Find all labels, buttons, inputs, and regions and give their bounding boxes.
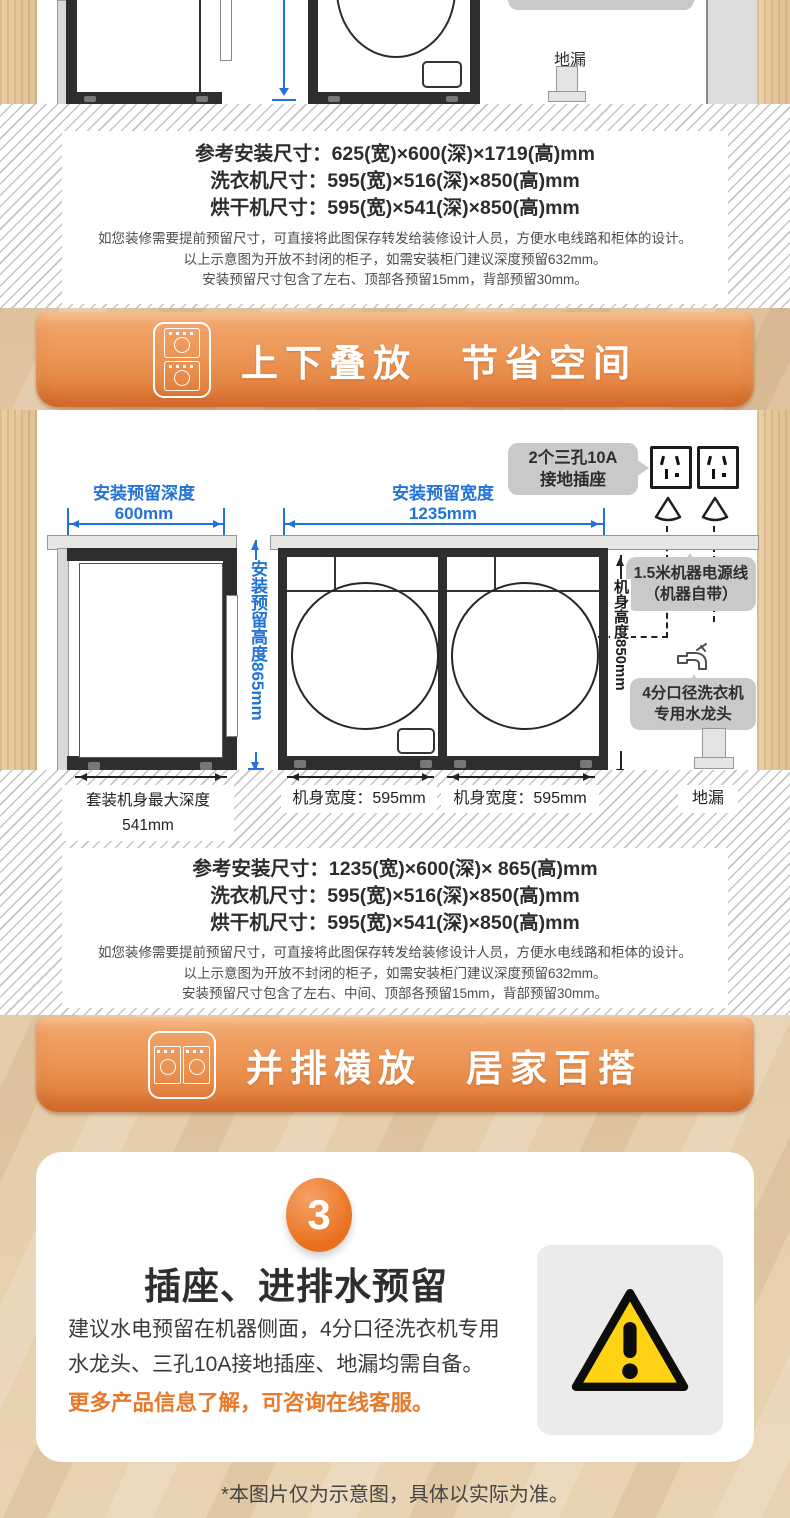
cabinet-back-panel <box>57 548 69 772</box>
body-width-arrow <box>447 776 595 778</box>
product-detail-page: 地漏 参考安装尺寸：625(宽)×600(深)×1719(高)mm 洗衣机尺寸：… <box>0 0 790 1518</box>
cabinet-foot <box>84 96 96 102</box>
washer-glyph <box>164 361 200 391</box>
floor-drain-base <box>694 757 734 769</box>
plug-icon <box>700 495 730 523</box>
step-3-card: 3 插座、进排水预留 建议水电预留在机器侧面，4分口径洗衣机专用水龙头、三孔10… <box>36 1152 754 1462</box>
note-line: 以上示意图为开放不封闭的柜子，如需安装柜门建议深度预留632mm。 <box>62 250 728 271</box>
banner-title: 并排横放 居家百搭 <box>246 1038 642 1092</box>
washer-door-circle <box>291 582 439 730</box>
card-title: 插座、进排水预留 <box>56 1256 536 1310</box>
cropped-callout-bubble <box>508 0 694 10</box>
max-depth-arrow <box>75 776 227 778</box>
note-line: 如您装修需要提前预留尺寸，可直接将此图保存转发给装修设计人员，方便水电线路和柜体… <box>62 943 728 964</box>
dimension-arrowhead <box>279 88 289 96</box>
side-spec-panel: 参考安装尺寸：1235(宽)×600(深)× 865(高)mm 洗衣机尺寸：59… <box>62 848 728 1008</box>
note-line: 如您装修需要提前预留尺寸，可直接将此图保存转发给装修设计人员，方便水电线路和柜体… <box>62 229 728 250</box>
cabinet-side-frame <box>66 0 77 104</box>
warning-box <box>537 1245 723 1435</box>
top-diagram-section: 地漏 参考安装尺寸：625(宽)×600(深)×1719(高)mm 洗衣机尺寸：… <box>0 0 790 308</box>
warning-icon <box>570 1286 690 1394</box>
right-wall-wood <box>757 410 790 770</box>
card-body: 建议水电预留在机器侧面，4分口径洗衣机专用水龙头、三孔10A接地插座、地漏均需自… <box>68 1312 520 1421</box>
body-width-label-right: 机身宽度：595mm <box>441 785 599 813</box>
body-height-dimension: 机身高度850mm <box>608 555 634 777</box>
washer-panel-badge <box>397 728 435 754</box>
right-wall-wood <box>757 0 790 110</box>
washer-foot <box>446 96 458 102</box>
left-wall-wood <box>0 410 37 770</box>
machine-foot <box>88 762 100 770</box>
spec-line: 洗衣机尺寸：595(宽)×516(深)×850(高)mm <box>62 883 728 910</box>
washer-glyph <box>164 328 200 358</box>
washer-door-circle <box>336 0 456 58</box>
machine-foot <box>580 760 592 768</box>
dryer-door-circle <box>451 582 599 730</box>
note-line: 以上示意图为开放不封闭的柜子，如需安装柜门建议深度预留632mm。 <box>62 964 728 985</box>
washer-divider-wall <box>438 548 447 770</box>
floor-drain-label: 地漏 <box>678 785 738 813</box>
machine-foot <box>420 760 432 768</box>
dimension-text: 安装预留宽度 <box>280 484 606 504</box>
max-depth-label: 套装机身最大深度 541mm <box>62 785 234 841</box>
spec-line: 烘干机尺寸：595(宽)×541(深)×850(高)mm <box>62 910 728 937</box>
banner-title: 上下叠放 节省空间 <box>241 333 637 387</box>
top-spec-panel: 参考安装尺寸：625(宽)×600(深)×1719(高)mm 洗衣机尺寸：595… <box>62 131 728 304</box>
height-dimension-line <box>283 0 285 92</box>
washer-panel-badge <box>422 61 462 88</box>
body-width-label-left: 机身宽度：595mm <box>281 785 437 813</box>
callout-line: （机器自带） <box>626 584 756 605</box>
card-cta-text: 更多产品信息了解，可咨询在线客服。 <box>68 1386 520 1421</box>
dimension-value: 1235mm <box>280 504 606 524</box>
stack-banner: 上下叠放 节省空间 <box>36 312 754 407</box>
machine-side-body <box>79 563 223 758</box>
washer-glyph <box>154 1046 181 1084</box>
control-panel-divider <box>494 557 496 590</box>
body-height-dimension-label: 机身高度850mm <box>610 579 631 751</box>
depth-dimension-arrow <box>67 523 225 525</box>
machine-foot <box>200 762 212 770</box>
callout-line: 2个三孔10A <box>508 447 638 469</box>
note-line: 安装预留尺寸包含了左右、中间、顶部各预留15mm，背部预留30mm。 <box>62 984 728 1005</box>
washer-glyph <box>183 1046 210 1084</box>
card-body-text: 建议水电预留在机器侧面，4分口径洗衣机专用水龙头、三孔10A接地插座、地漏均需自… <box>68 1312 520 1382</box>
washer-front-partial <box>308 0 480 104</box>
faucet-callout-bubble: 4分口径洗衣机 专用水龙头 <box>630 678 756 730</box>
right-wall-panel <box>706 0 759 104</box>
power-callout-bubble: 1.5米机器电源线 （机器自带） <box>626 557 756 611</box>
machine-foot <box>294 760 306 768</box>
cabinet-front-line <box>199 0 201 92</box>
spec-line: 烘干机尺寸：595(宽)×541(深)×850(高)mm <box>62 195 728 222</box>
socket-icon <box>650 446 692 489</box>
washer-foot <box>328 96 340 102</box>
cabinet-door-handle <box>220 0 232 61</box>
width-dimension-arrow <box>283 523 603 525</box>
footer-disclaimer: *本图片仅为示意图，具体以实际为准。 <box>0 1478 790 1507</box>
washer-base <box>287 756 438 770</box>
spec-line: 洗衣机尺寸：595(宽)×516(深)×850(高)mm <box>62 168 728 195</box>
washer-left-wall <box>278 548 287 770</box>
socket-icon <box>697 446 739 489</box>
spec-line: 参考安装尺寸：1235(宽)×600(深)× 865(高)mm <box>62 856 728 883</box>
dimension-value: 600mm <box>60 504 228 524</box>
label-line: 套装机身最大深度 <box>62 788 234 813</box>
spec-line: 参考安装尺寸：625(宽)×600(深)×1719(高)mm <box>62 141 728 168</box>
control-panel-divider <box>334 557 336 590</box>
left-wall-wood <box>0 0 37 104</box>
side-by-side-diagram-section: 2个三孔10A 接地插座 1.5米机器电源线 （机器自带） 机身高度850mm <box>0 410 790 1015</box>
floor-drain-icon <box>702 728 726 760</box>
floor-drain-icon <box>556 66 578 94</box>
cabinet-foot <box>196 96 208 102</box>
floor-drain-base <box>548 91 586 102</box>
machine-foot <box>454 760 466 768</box>
dimension-tick <box>272 99 296 101</box>
cabinet-top-frame <box>67 548 237 561</box>
plug-icon <box>653 495 683 523</box>
washer-right-wall <box>599 548 608 770</box>
dimension-arrowhead <box>251 537 259 550</box>
row-banner: 并排横放 居家百搭 <box>36 1017 754 1112</box>
width-dimension-label: 安装预留宽度 1235mm <box>280 484 606 524</box>
washer-left-wall <box>308 0 318 104</box>
depth-dimension-label: 安装预留深度 600mm <box>60 484 228 524</box>
dryer-base <box>447 756 599 770</box>
dimension-text: 安装预留深度 <box>60 484 228 504</box>
callout-line: 专用水龙头 <box>630 704 756 725</box>
note-line: 安装预留尺寸包含了左右、顶部各预留15mm，背部预留30mm。 <box>62 270 728 291</box>
body-width-arrow <box>287 776 434 778</box>
callout-line: 4分口径洗衣机 <box>630 683 756 704</box>
stacked-washers-icon <box>153 322 211 398</box>
dimension-arrowhead <box>616 553 624 566</box>
washer-right-wall <box>470 0 480 104</box>
side-by-side-washers-icon <box>148 1031 216 1099</box>
label-line: 541mm <box>62 813 234 838</box>
step-number-badge: 3 <box>286 1178 352 1252</box>
machine-door-handle <box>226 595 238 737</box>
install-height-dimension-label: 安装预留高度865mm <box>245 560 270 752</box>
callout-line: 1.5米机器电源线 <box>626 563 756 584</box>
